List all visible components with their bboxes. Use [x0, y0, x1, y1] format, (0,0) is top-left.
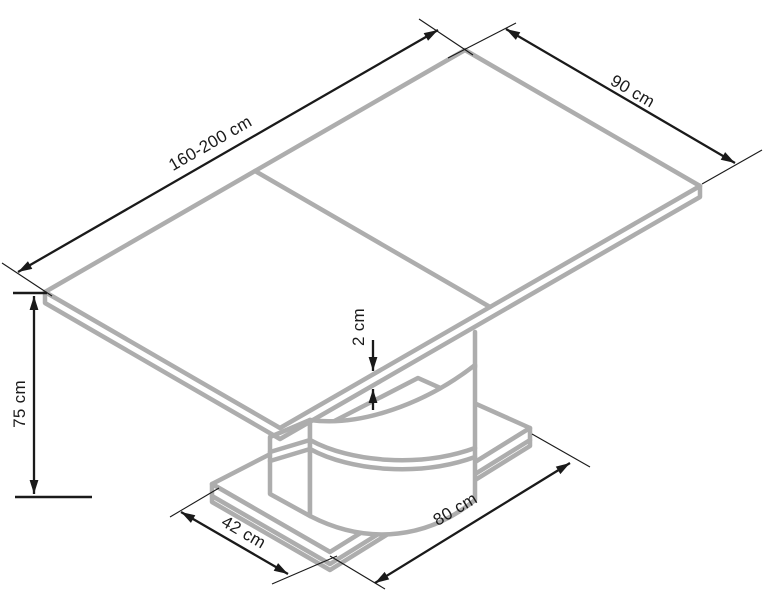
table-dimension-diagram: 160-200 cm 90 cm 75 cm 2 cm 42 cm 80 cm	[0, 0, 769, 610]
label-table-height: 75 cm	[10, 380, 29, 428]
dim-width-ext-right	[702, 150, 762, 184]
table-drawing	[45, 50, 700, 570]
dim-base-length-ext-right	[532, 434, 590, 467]
table-top	[45, 50, 700, 439]
label-tabletop-thickness: 2 cm	[349, 308, 368, 346]
dim-base-length-ext-left	[330, 556, 385, 589]
dimension-drawing-page: 160-200 cm 90 cm 75 cm 2 cm 42 cm 80 cm	[0, 0, 769, 610]
dim-width-ext-left	[448, 23, 516, 58]
label-tabletop-width: 90 cm	[607, 71, 658, 111]
